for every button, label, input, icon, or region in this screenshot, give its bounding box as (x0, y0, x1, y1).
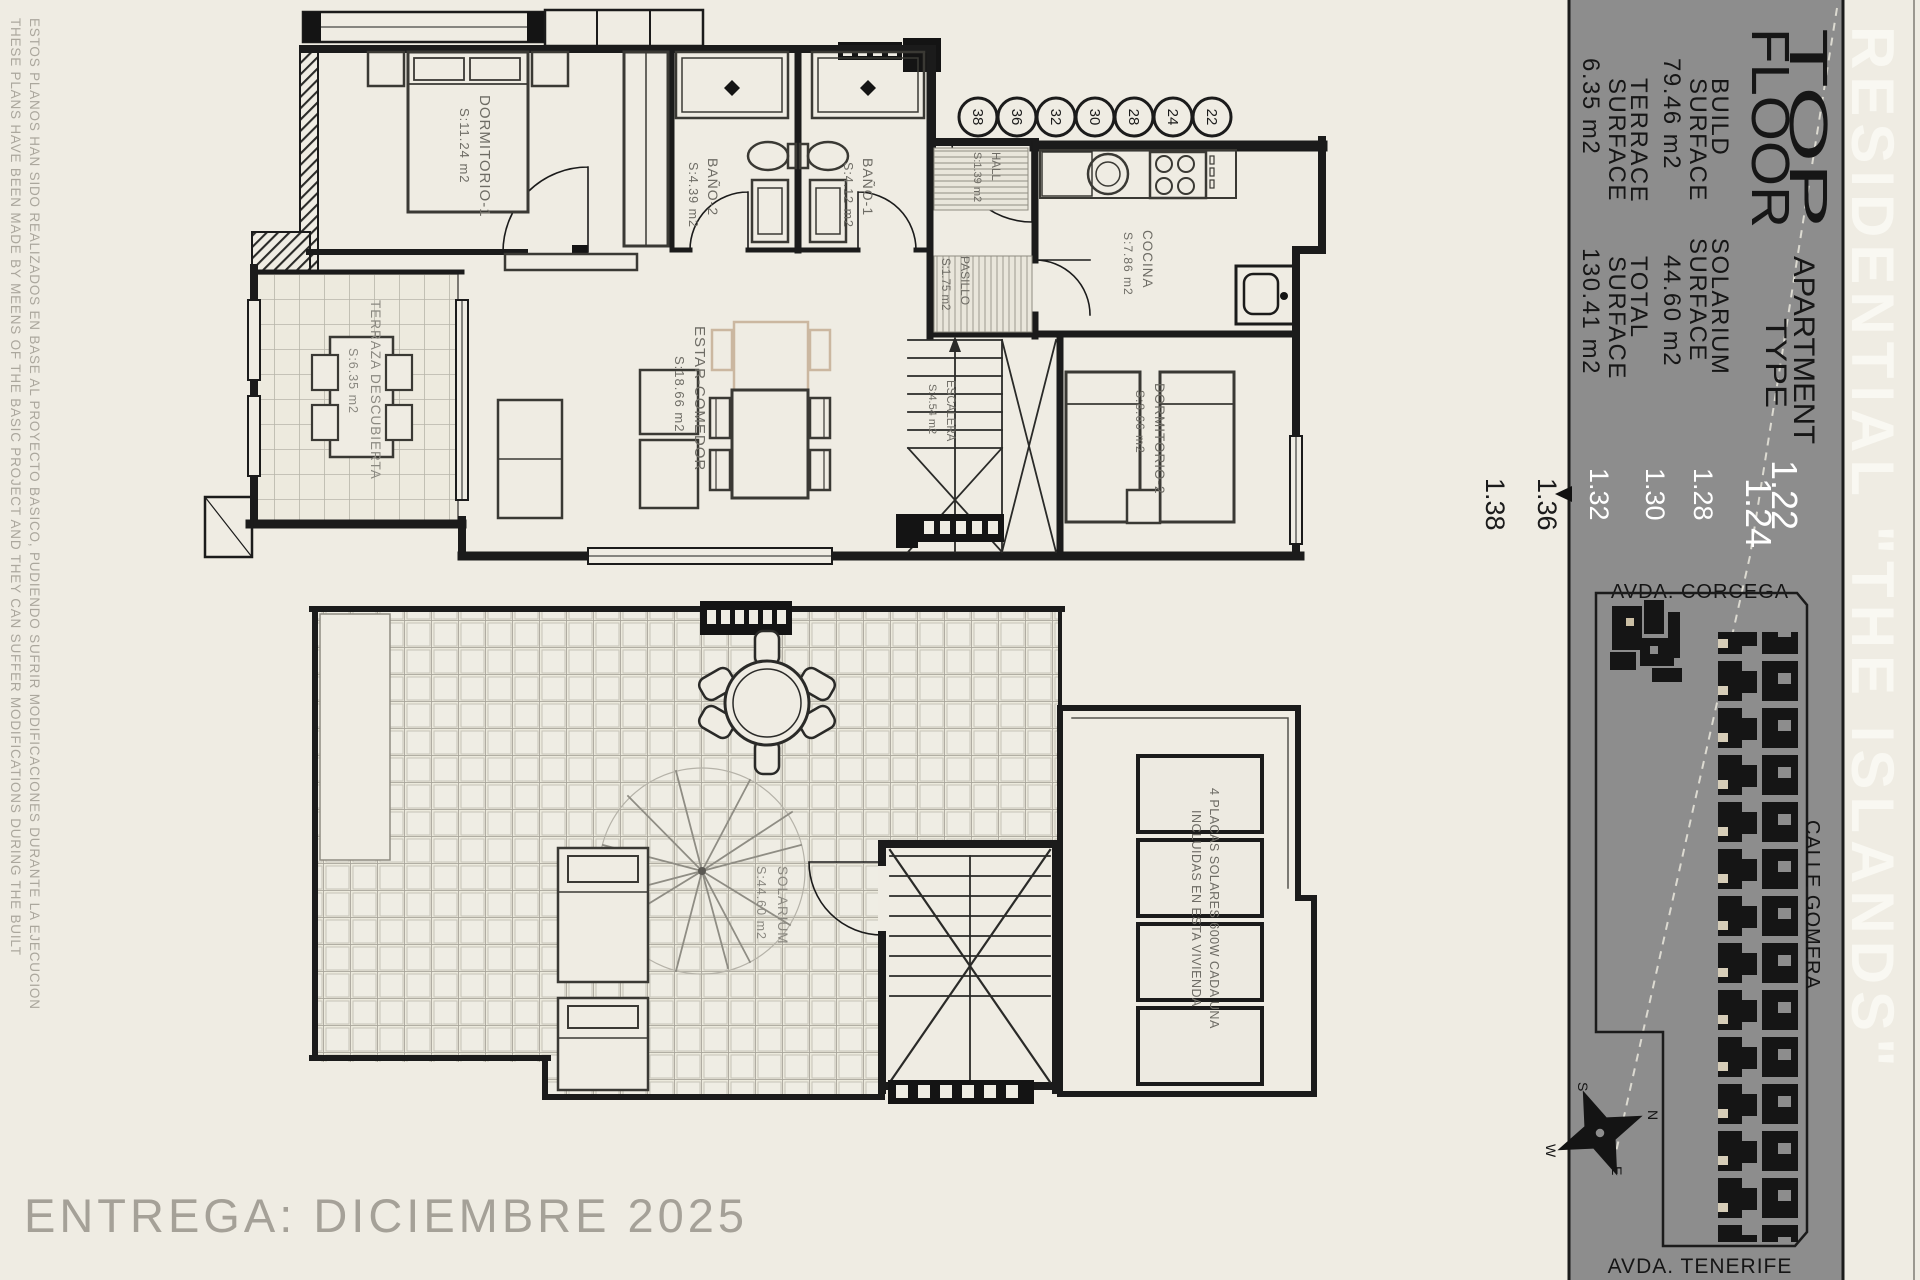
apartment-type-label: TYPE (1759, 318, 1792, 408)
room-label: BAÑO-1 (860, 158, 876, 216)
room-label: BAÑO-2 (705, 158, 721, 216)
plan-canvas: THESE PLANS HAVE BEEN MADE BY MEENS OF T… (0, 0, 1920, 1280)
floor-plan-upper: 38 36 32 30 28 24 22 DORMITORIO-1 S:11.2… (205, 10, 1322, 564)
room-area: S:4.12 m2 (841, 162, 855, 228)
plot-circle-label: 22 (1203, 109, 1220, 126)
compass-w: W (1543, 1144, 1559, 1158)
terrace-surface-label: SURFACE (1603, 78, 1630, 202)
build-surface-value: 79.46 m2 (1658, 58, 1685, 170)
plot-circle-label: 24 (1164, 109, 1181, 126)
solarium-surface-value: 44.60 m2 (1658, 255, 1685, 367)
unit-number: 1.36 (1532, 478, 1562, 531)
unit-number: 1.32 (1584, 468, 1614, 521)
total-surface-value: 130.41 m2 (1577, 248, 1604, 375)
room-label: ESTAR-COMEDOR (691, 326, 708, 471)
room-label: PASILLO (958, 256, 972, 305)
plot-circle-label: 30 (1086, 109, 1103, 126)
floor-plan-solarium: SOLARIUM S:44.60 m2 4 PLACAS SOLARES 600… (312, 601, 1314, 1104)
room-area: S:1.39 m2 (971, 152, 983, 202)
unit-number: 1.28 (1688, 468, 1718, 521)
room-label: TERRAZA DESCUBIERTA (368, 300, 383, 480)
total-surface-label: SURFACE (1603, 256, 1630, 380)
room-area: S:4.54 m2 (926, 384, 938, 434)
room-label: SOLARIUM (775, 866, 790, 945)
room-area: S:6.35 m2 (346, 348, 360, 414)
room-area: S:18.66 m2 (672, 356, 687, 433)
room-area: S:44.60 m2 (754, 866, 768, 940)
unit-number: 1.38 (1480, 478, 1510, 531)
room-label: COCINA (1140, 230, 1155, 289)
solarium-surface-label: SURFACE (1684, 238, 1711, 362)
plot-circle-label: 36 (1008, 109, 1025, 126)
build-surface-label: SURFACE (1684, 78, 1711, 202)
unit-number: 1.30 (1640, 468, 1670, 521)
room-label: DORMITORIO-2 (1152, 383, 1167, 495)
plot-circle-label: 38 (969, 109, 986, 126)
plot-circle-label: 32 (1047, 109, 1064, 126)
room-area: S:4.39 m2 (686, 162, 700, 228)
compass-s: S (1575, 1082, 1591, 1091)
brand-title: RESIDENTIAL "THE ISLANDS" (1839, 26, 1906, 1074)
disclaimer-es: ESTOS PLANOS HAN SIDO REALIZADOS EN BASE… (27, 18, 42, 1010)
title-band: RESIDENTIAL "THE ISLANDS" TOP FLOOR APAR… (1480, 0, 1914, 1280)
street-label-right: CALLE GOMERA (1801, 820, 1823, 990)
hatched-wall-terrace (252, 232, 310, 272)
compass-n: N (1645, 1110, 1661, 1120)
site-building-row (1718, 632, 1798, 1242)
plot-circle-label: 28 (1125, 109, 1142, 126)
room-label: HALL (989, 152, 1001, 181)
apartment-type-value: 1.24 (1738, 478, 1779, 548)
room-area: S:8.66 m2 (1133, 390, 1147, 454)
solar-note-line1: 4 PLACAS SOLARES 600W CADA UNA (1207, 788, 1221, 1029)
disclaimer-block: THESE PLANS HAVE BEEN MADE BY MEENS OF T… (8, 18, 42, 1010)
room-label: DORMITORIO-1 (476, 95, 493, 218)
terrace-surface-value: 6.35 m2 (1577, 58, 1604, 155)
compass-e: E (1609, 1166, 1625, 1175)
floor-plan-sheet: THESE PLANS HAVE BEEN MADE BY MEENS OF T… (0, 0, 1920, 1280)
delivery-text: ENTREGA: DICIEMBRE 2025 (24, 1189, 748, 1242)
sun-loungers (558, 848, 648, 1090)
room-area: S:1.75 m2 (939, 258, 951, 310)
floor-title: FLOOR (1740, 28, 1800, 228)
street-label-bottom: AVDA. TENERIFE (1608, 1255, 1793, 1278)
disclaimer-en: THESE PLANS HAVE BEEN MADE BY MEENS OF T… (8, 18, 23, 956)
solar-note-line2: INCLUIDAS EN ESTA VIVIENDA (1189, 810, 1203, 1007)
room-label: ESCALERA (944, 380, 956, 442)
room-area: S:7.86 m2 (1121, 232, 1135, 296)
room-area: S:11.24 m2 (457, 108, 472, 184)
